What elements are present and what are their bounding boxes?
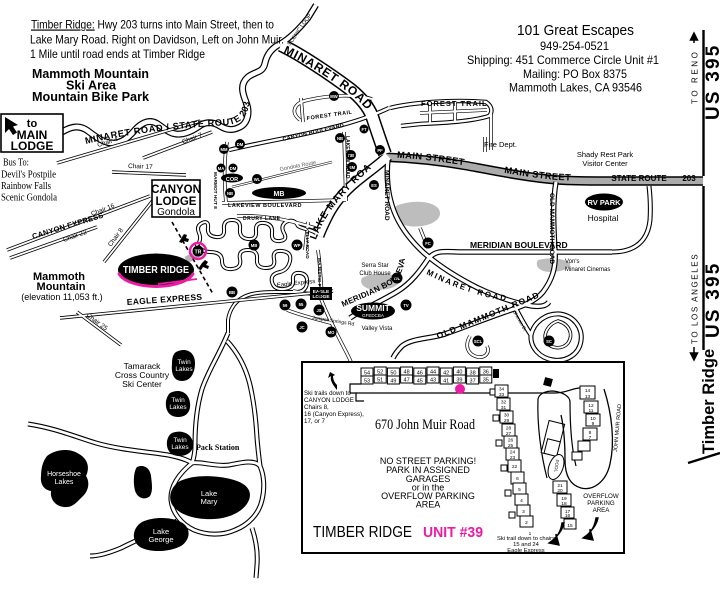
svg-text:Mammoth Lakes, CA 93546: Mammoth Lakes, CA 93546 — [509, 81, 642, 95]
svg-text:STATE ROUTE: STATE ROUTE — [611, 174, 667, 183]
svg-text:COR: COR — [226, 177, 238, 183]
svg-text:MM: MM — [221, 147, 228, 152]
svg-text:48: 48 — [404, 370, 410, 376]
svg-text:JC: JC — [299, 325, 304, 330]
svg-text:Bus To:: Bus To: — [3, 158, 29, 169]
svg-text:40: 40 — [456, 370, 462, 376]
svg-text:45: 45 — [417, 379, 423, 385]
svg-text:CANYON: CANYON — [151, 184, 201, 196]
svg-text:36: 36 — [483, 370, 489, 376]
svg-text:34: 34 — [499, 387, 505, 393]
svg-text:OLD MAMMOTH ROAD: OLD MAMMOTH ROAD — [548, 193, 555, 264]
svg-text:59: 59 — [283, 303, 288, 308]
svg-text:Twin: Twin — [173, 437, 187, 444]
svg-text:MO: MO — [328, 330, 335, 335]
svg-text:1 Mile until road ends at Timb: 1 Mile until road ends at Timber Ridge — [30, 47, 205, 61]
svg-text:FOREST TRAIL: FOREST TRAIL — [421, 99, 488, 108]
svg-text:37: 37 — [470, 379, 476, 385]
svg-text:NB: NB — [227, 191, 233, 196]
svg-text:27: 27 — [506, 431, 512, 437]
svg-text:US 395: US 395 — [703, 261, 720, 338]
svg-text:Devil's Postpile: Devil's Postpile — [1, 170, 56, 181]
svg-text:4: 4 — [520, 498, 523, 504]
svg-text:Pack Station: Pack Station — [196, 443, 240, 452]
svg-text:SC: SC — [546, 339, 552, 344]
svg-text:TIMBER RIDGE: TIMBER RIDGE — [123, 265, 189, 276]
svg-text:16 (Canyon Express),: 16 (Canyon Express), — [304, 411, 364, 418]
svg-text:Chairs 8,: Chairs 8, — [304, 404, 329, 411]
svg-text:28: 28 — [506, 426, 512, 432]
svg-text:DRURY LANE: DRURY LANE — [243, 216, 281, 222]
svg-text:TO LOS ANGELES: TO LOS ANGELES — [691, 253, 700, 344]
svg-text:35: 35 — [483, 378, 489, 384]
svg-text:44: 44 — [430, 370, 436, 376]
svg-text:670 John Muir Road: 670 John Muir Road — [375, 417, 476, 433]
svg-text:53: 53 — [364, 379, 370, 385]
svg-text:Ski trails down to: Ski trails down to — [304, 390, 351, 397]
svg-text:Eagle Express: Eagle Express — [507, 548, 544, 554]
svg-text:46: 46 — [417, 371, 423, 377]
svg-text:MARMOT HUT 8: MARMOT HUT 8 — [212, 172, 218, 209]
svg-text:MW: MW — [330, 94, 337, 99]
svg-text:DM: DM — [237, 142, 244, 147]
svg-text:Mary: Mary — [201, 497, 218, 506]
svg-text:38: 38 — [470, 371, 476, 377]
svg-text:Visitor Center: Visitor Center — [582, 159, 628, 168]
svg-text:24: 24 — [510, 450, 516, 456]
svg-text:Fire Dept.: Fire Dept. — [484, 140, 517, 149]
svg-text:AREA: AREA — [593, 507, 611, 514]
svg-text:50: 50 — [390, 371, 396, 377]
svg-text:Minaret Cinemas: Minaret Cinemas — [565, 267, 610, 273]
svg-text:TIMBER RIDGE: TIMBER RIDGE — [313, 524, 412, 541]
svg-text:AREA: AREA — [416, 500, 441, 510]
svg-text:13: 13 — [585, 394, 591, 400]
svg-text:Lakes: Lakes — [171, 444, 189, 451]
svg-text:Ski Center: Ski Center — [122, 379, 162, 389]
svg-text:Lakes: Lakes — [55, 479, 74, 486]
svg-text:LODGE: LODGE — [11, 139, 54, 153]
svg-text:23: 23 — [510, 455, 516, 461]
svg-text:29: 29 — [504, 418, 510, 424]
svg-text:Lakes: Lakes — [169, 404, 187, 411]
svg-text:ES: ES — [371, 183, 377, 188]
svg-text:7: 7 — [589, 435, 592, 441]
svg-text:51: 51 — [377, 378, 383, 384]
svg-text:Scenic Gondola: Scenic Gondola — [1, 193, 57, 204]
svg-text:FC: FC — [425, 241, 431, 246]
svg-text:Twin: Twin — [177, 359, 191, 366]
svg-text:Hospital: Hospital — [588, 213, 619, 223]
svg-text:TO RENO: TO RENO — [691, 49, 700, 104]
svg-text:FT: FT — [361, 127, 367, 132]
svg-text:2: 2 — [525, 520, 528, 526]
svg-text:JS: JS — [316, 308, 321, 313]
svg-text:MA: MA — [218, 166, 225, 171]
svg-text:101 Great Escapes: 101 Great Escapes — [517, 22, 634, 39]
svg-text:(elevation 11,053 ft.): (elevation 11,053 ft.) — [21, 292, 102, 302]
svg-text:Serra Star: Serra Star — [361, 263, 388, 269]
svg-text:15: 15 — [567, 523, 573, 529]
svg-text:25: 25 — [508, 443, 514, 449]
svg-text:6: 6 — [516, 476, 519, 482]
svg-text:MINARET ROAD: MINARET ROAD — [383, 170, 390, 221]
svg-text:MB: MB — [274, 191, 285, 198]
svg-text:Valley Vista: Valley Vista — [362, 326, 393, 332]
svg-text:NB: NB — [337, 136, 343, 141]
svg-text:42: 42 — [443, 371, 449, 377]
svg-text:39: 39 — [456, 378, 462, 384]
svg-text:26: 26 — [508, 438, 514, 444]
svg-text:55: 55 — [299, 302, 304, 307]
svg-text:KELLY ROAD: KELLY ROAD — [304, 228, 310, 259]
svg-text:Horseshoe: Horseshoe — [47, 471, 81, 478]
svg-text:Gondola: Gondola — [157, 207, 195, 218]
svg-text:Rainbow Falls: Rainbow Falls — [1, 181, 51, 192]
svg-text:Mountain Bike Park: Mountain Bike Park — [32, 89, 150, 104]
svg-text:TV: TV — [403, 303, 409, 308]
svg-text:PF: PF — [377, 148, 383, 153]
svg-text:LAKEVIEW ROAD: LAKEVIEW ROAD — [344, 136, 350, 179]
svg-text:54: 54 — [364, 371, 370, 377]
svg-text:22: 22 — [512, 464, 518, 470]
svg-text:TR: TR — [195, 250, 202, 256]
svg-text:203: 203 — [682, 174, 696, 183]
svg-text:49: 49 — [390, 379, 396, 385]
svg-text:RV PARK: RV PARK — [587, 198, 621, 207]
svg-text:3: 3 — [522, 509, 525, 515]
svg-text:Mailing: PO Box 8375: Mailing: PO Box 8375 — [523, 67, 627, 81]
svg-text:47: 47 — [404, 378, 410, 384]
svg-text:Von's: Von's — [565, 259, 580, 265]
svg-text:Chair 17: Chair 17 — [128, 163, 153, 171]
svg-text:11: 11 — [589, 408, 594, 414]
svg-text:17, or 7: 17, or 7 — [304, 418, 326, 425]
svg-text:UNIT #39: UNIT #39 — [423, 524, 483, 541]
svg-text:32: 32 — [501, 400, 507, 406]
svg-text:52: 52 — [377, 370, 383, 376]
svg-text:30: 30 — [504, 413, 510, 419]
svg-text:41: 41 — [443, 379, 449, 385]
svg-text:18: 18 — [561, 501, 567, 507]
svg-text:949-254-0521: 949-254-0521 — [540, 39, 609, 53]
svg-text:9: 9 — [592, 421, 595, 427]
svg-text:US 395: US 395 — [703, 43, 720, 120]
svg-text:WL: WL — [254, 177, 261, 182]
svg-text:George: George — [148, 535, 173, 544]
svg-text:5: 5 — [518, 487, 521, 493]
svg-text:Timber Ridge: Timber Ridge — [700, 349, 718, 454]
svg-text:Shipping: 451 Commerce Circle: Shipping: 451 Commerce Circle Unit #1 — [467, 53, 659, 67]
svg-text:LAKEVIEW BOULEVARD: LAKEVIEW BOULEVARD — [228, 203, 302, 209]
svg-text:16: 16 — [565, 513, 571, 519]
svg-text:Twin: Twin — [171, 397, 185, 404]
svg-text:Lakes: Lakes — [175, 366, 193, 373]
svg-text:33: 33 — [499, 392, 505, 398]
svg-text:DM: DM — [230, 166, 237, 171]
svg-text:43: 43 — [430, 378, 436, 384]
svg-text:Shady Rest Park: Shady Rest Park — [577, 150, 634, 159]
svg-text:Club House: Club House — [359, 271, 391, 277]
svg-text:CANYON LODGE: CANYON LODGE — [304, 397, 354, 404]
svg-text:14: 14 — [585, 388, 591, 394]
svg-text:31: 31 — [501, 405, 507, 411]
svg-text:WP: WP — [294, 243, 301, 248]
svg-text:PARKING: PARKING — [587, 500, 615, 507]
svg-text:Lake Mary Road. Right on David: Lake Mary Road. Right on Davidson, Left … — [30, 33, 284, 47]
svg-text:BB: BB — [229, 290, 235, 295]
svg-text:Timber Ridge: Hwy 203 turns in: Timber Ridge: Hwy 203 turns into Main St… — [31, 18, 274, 32]
svg-text:OVERFLOW: OVERFLOW — [583, 493, 619, 500]
svg-text:SUMMIT: SUMMIT — [356, 303, 390, 313]
svg-text:MAJESTIC PINES: MAJESTIC PINES — [316, 258, 322, 299]
svg-text:SCL: SCL — [474, 339, 483, 344]
svg-text:20: 20 — [557, 488, 563, 494]
svg-text:GFEDCBA: GFEDCBA — [362, 313, 384, 318]
svg-text:MB: MB — [251, 243, 258, 248]
